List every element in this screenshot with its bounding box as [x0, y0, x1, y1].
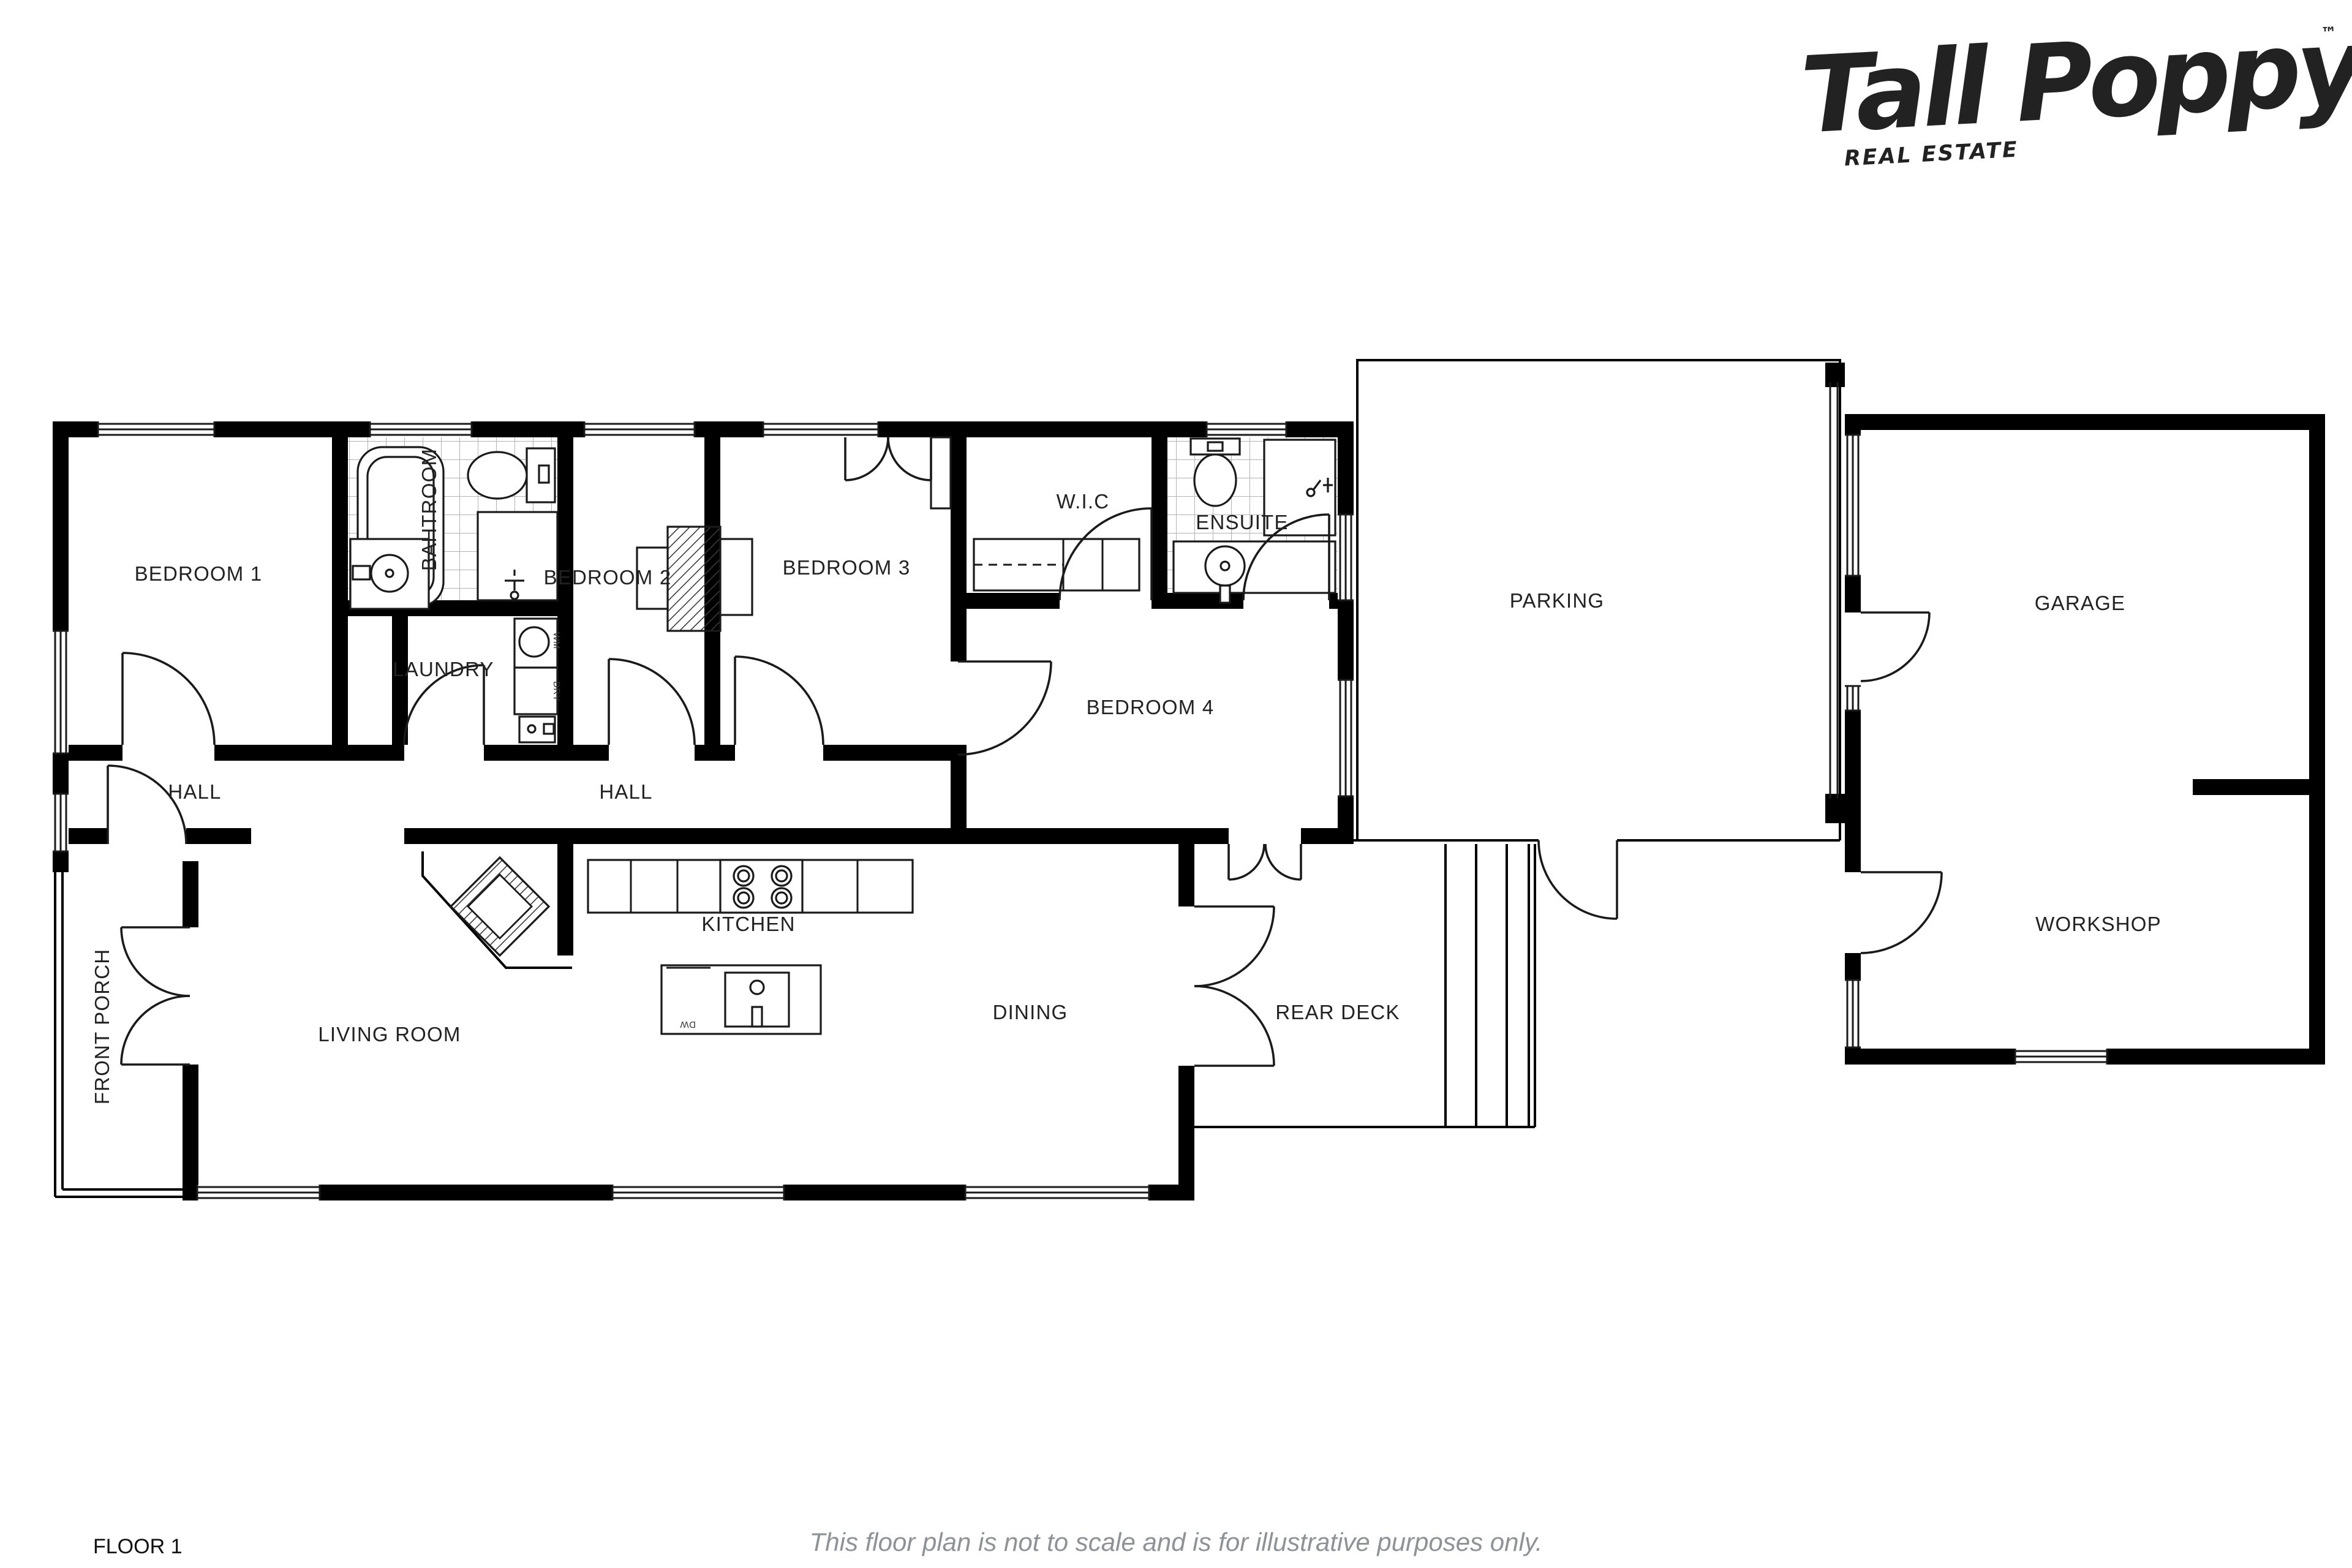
room-label-bedroom3: BEDROOM 3	[783, 556, 911, 579]
bedroom1-door	[123, 653, 214, 745]
front-door	[108, 766, 186, 844]
room-label-living-room: LIVING ROOM	[318, 1023, 461, 1046]
room-label-laundry: LAUNDRY	[393, 658, 494, 680]
floor-label: FLOOR 1	[93, 1535, 182, 1558]
laundry-tub	[519, 717, 555, 742]
floor-plan-page: BEDROOM 1 BAHTROOM LAUNDRY BEDROOM 2 BED…	[0, 0, 2352, 1568]
parking-deck-door	[1539, 840, 1617, 919]
room-label-wic: W.I.C	[1057, 490, 1110, 513]
room-label-ensuite: ENSUITE	[1196, 511, 1288, 533]
dishwasher-label: DW	[680, 1019, 696, 1030]
toilet-icon	[468, 448, 555, 502]
fireplace	[423, 851, 572, 968]
bedroom4-door	[958, 661, 1051, 755]
bathroom-vanity	[350, 539, 429, 609]
room-label-rear-deck: REAR DECK	[1275, 1001, 1400, 1023]
brand-logo: Tall Poppy ™ REAL ESTATE	[1798, 5, 2352, 173]
front-porch-outline	[55, 861, 183, 1197]
bedroom3-closet-doors	[845, 437, 931, 480]
bedroom3-closet	[931, 437, 951, 508]
ensuite-toilet-icon	[1191, 439, 1240, 506]
room-label-bathroom: BAHTROOM	[418, 448, 440, 571]
bedroom3-door	[735, 657, 823, 745]
room-label-workshop: WORKSHOP	[2035, 913, 2162, 935]
porch-double-doors	[121, 927, 190, 1065]
room-label-garage: GARAGE	[2035, 592, 2125, 614]
rear-deck-outline	[1194, 844, 1535, 1127]
wic-wardrobe	[974, 539, 1139, 590]
washing-machine-label: WM	[551, 632, 562, 649]
room-label-front-porch: FRONT PORCH	[91, 949, 113, 1105]
bedroom2-door	[609, 659, 695, 745]
dining-deck-doors	[1194, 907, 1274, 1066]
workshop-door	[1861, 872, 1942, 953]
room-label-dining: DINING	[993, 1001, 1068, 1023]
garage-side-door	[1861, 612, 1929, 681]
room-label-kitchen: KITCHEN	[701, 913, 795, 935]
room-label-bedroom2: BEDROOM 2	[544, 566, 672, 589]
floor-plan-svg: BEDROOM 1 BAHTROOM LAUNDRY BEDROOM 2 BED…	[0, 0, 2352, 1568]
room-label-bedroom1: BEDROOM 1	[135, 562, 263, 585]
brand-logo-text: Tall Poppy	[1798, 5, 2352, 157]
disclaimer-text: This floor plan is not to scale and is f…	[810, 1528, 1543, 1556]
deck-double-doors	[1229, 844, 1301, 880]
room-label-hall-right: HALL	[599, 780, 652, 803]
room-label-parking: PARKING	[1510, 589, 1604, 612]
ensuite-basin	[1174, 541, 1335, 603]
room-label-hall-left: HALL	[168, 780, 221, 803]
dryer-label: DRY	[551, 681, 562, 701]
room-label-bedroom4: BEDROOM 4	[1087, 696, 1215, 718]
